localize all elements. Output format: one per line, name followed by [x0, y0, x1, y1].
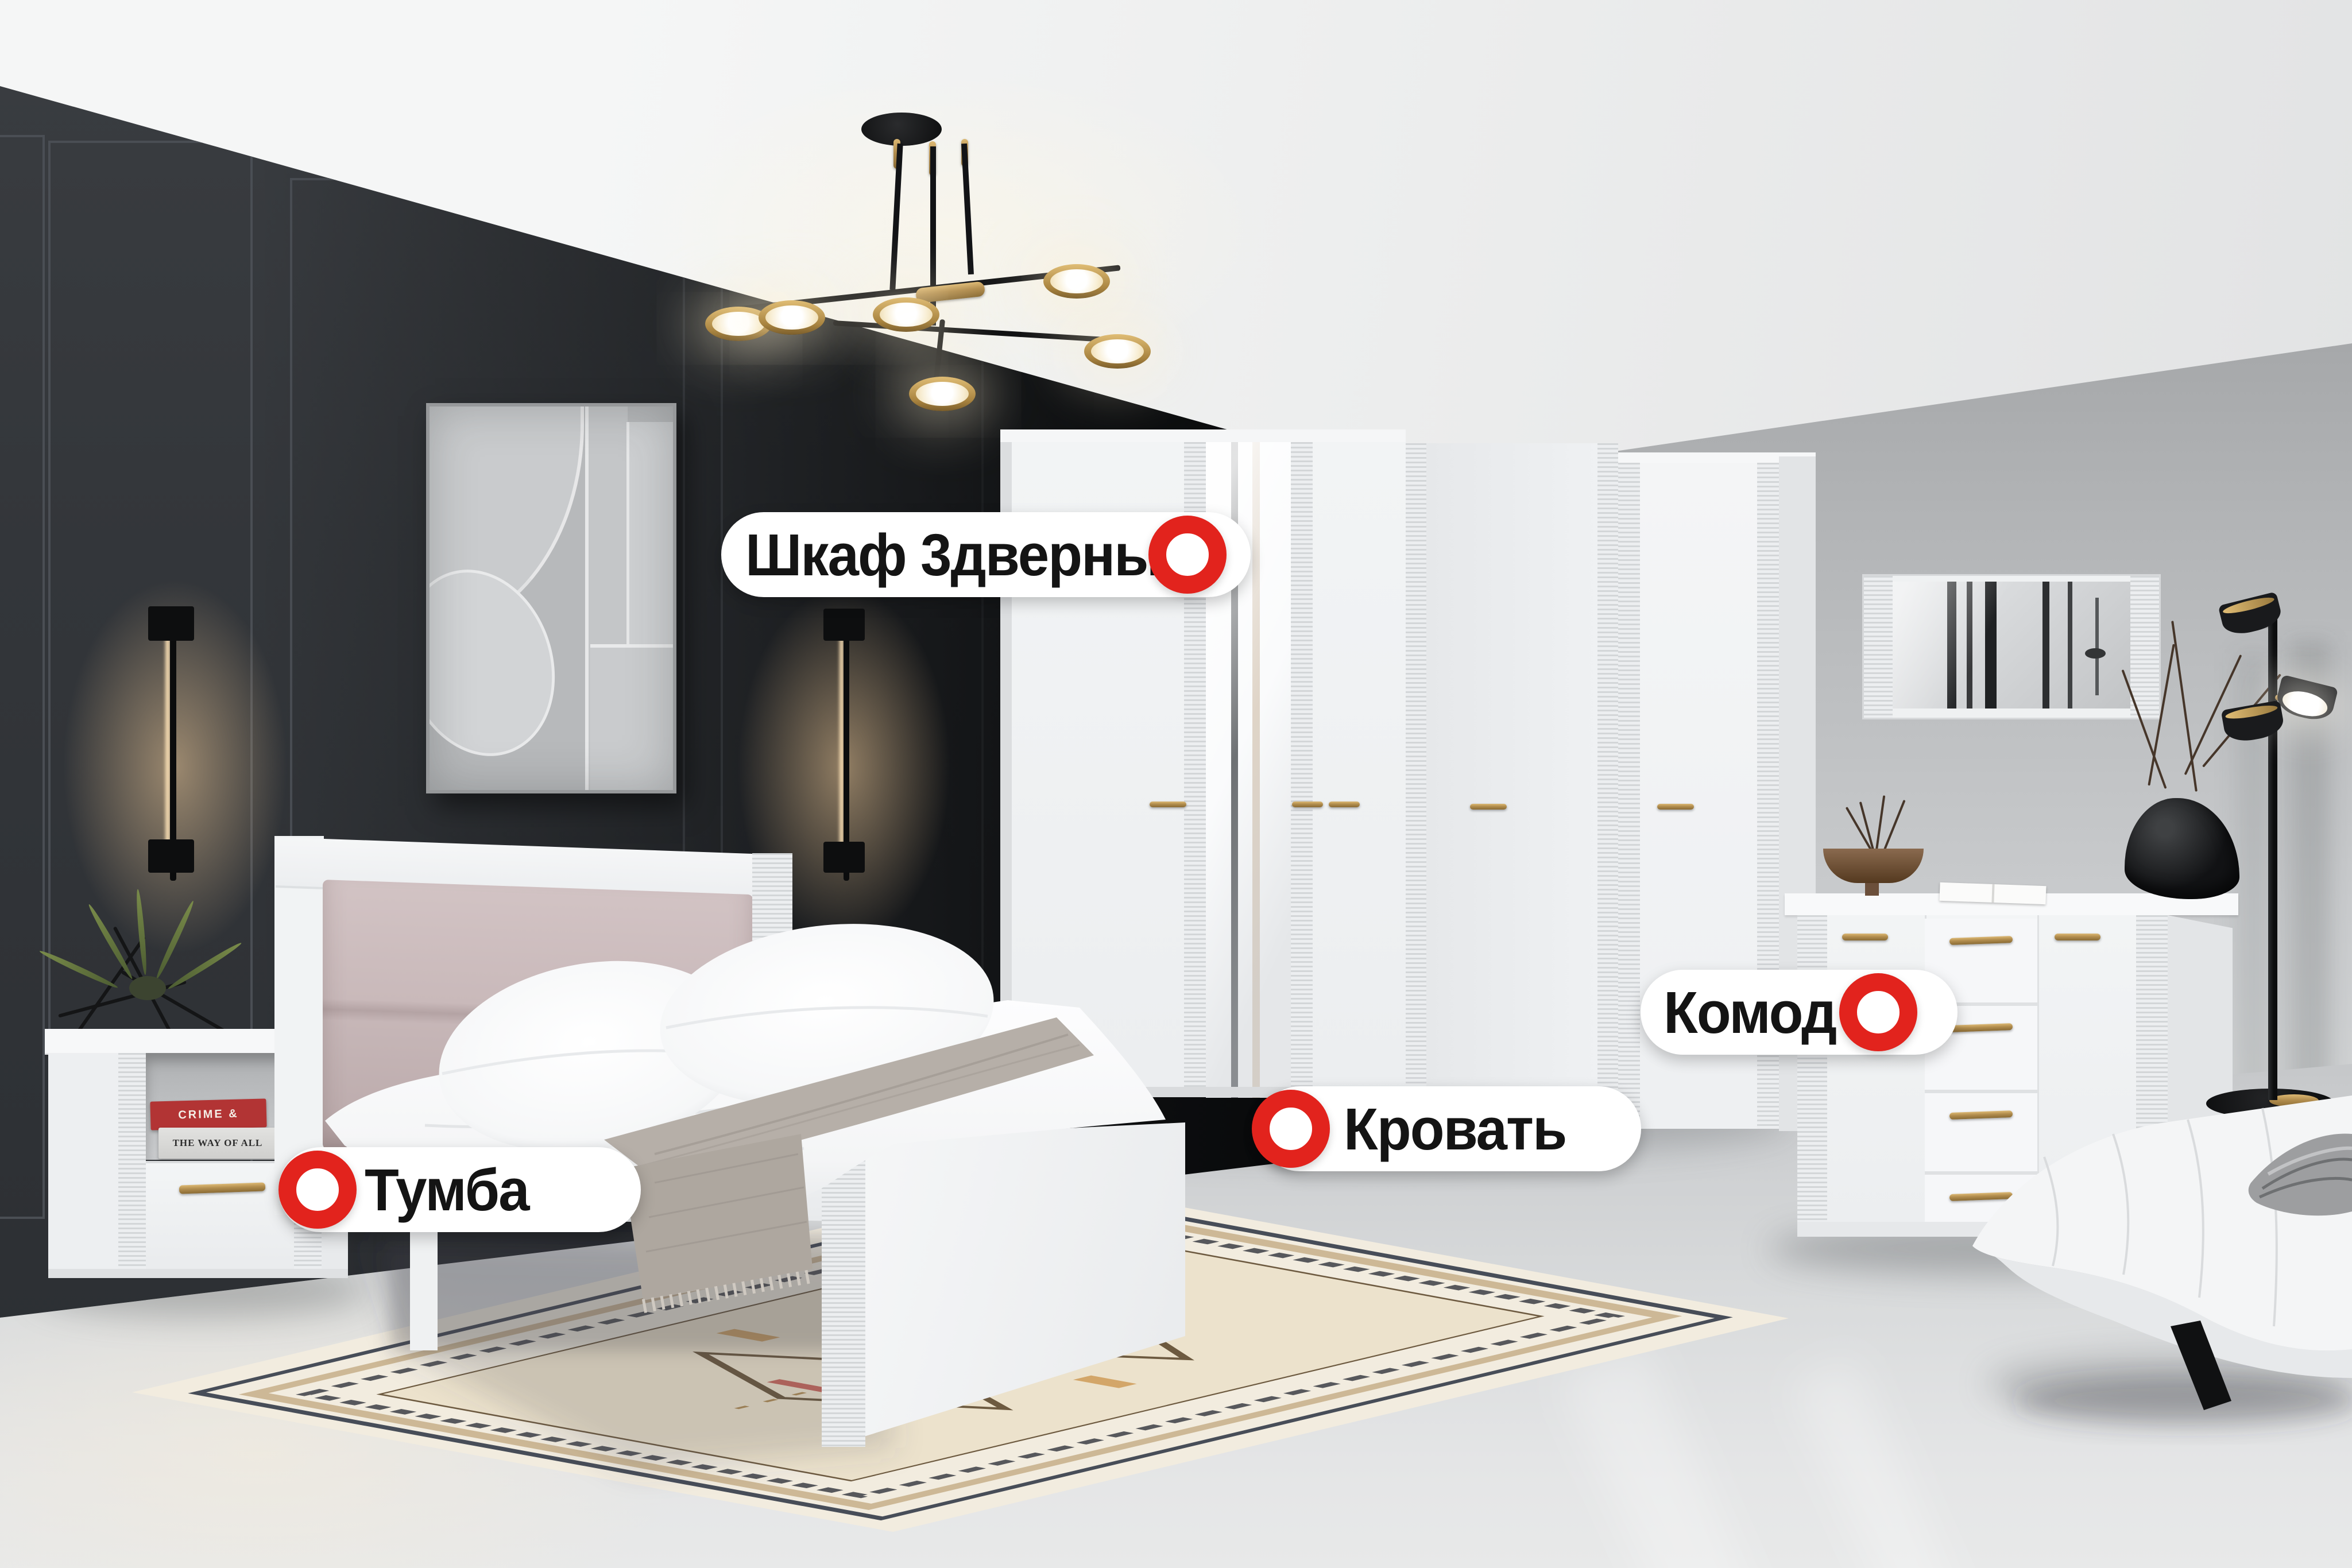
wardrobe-trim-strip — [1597, 443, 1618, 1120]
lamp-disc-light — [873, 297, 939, 332]
lamp-disc-light — [759, 300, 825, 335]
wardrobe-handle-icon — [1150, 802, 1186, 807]
lamp-canopy — [861, 113, 942, 146]
hotspot-marker-icon[interactable] — [1252, 1090, 1330, 1168]
hotspot-marker-icon[interactable] — [1148, 516, 1227, 594]
nightstand-label: Тумба — [365, 1160, 529, 1219]
wardrobe-door — [1313, 442, 1406, 1098]
floor-lamp-pole — [2268, 606, 2277, 1100]
dresser-door-left — [1827, 915, 1927, 1230]
hotspot-marker-icon[interactable] — [278, 1151, 357, 1229]
wall-mirror — [1862, 574, 2161, 719]
wardrobe-label: Шкаф 3дверный — [745, 525, 1194, 584]
wardrobe-handle-icon — [1657, 804, 1694, 810]
chaise-lounge — [1941, 1079, 2352, 1481]
wardrobe-handle-icon — [1292, 802, 1323, 807]
nightstand-left-face — [48, 1053, 118, 1278]
art-vignette — [430, 406, 673, 790]
lamp-disc-light — [1084, 334, 1151, 369]
dresser-label: Комод — [1664, 983, 1836, 1042]
mirror-glass — [1893, 582, 2130, 708]
hotspot-marker-icon[interactable] — [1839, 973, 1917, 1051]
wardrobe-trim-strip — [1291, 442, 1313, 1098]
abstract-wall-art — [426, 403, 676, 793]
wardrobe-handle-icon — [1329, 802, 1360, 807]
lamp-disc-light — [909, 377, 976, 411]
wardrobe-trim-strip — [1618, 463, 1640, 1129]
wardrobe-cornice — [1000, 429, 1406, 442]
dresser-handle-icon — [1842, 934, 1888, 940]
wardrobe-corner-face — [1406, 443, 1618, 1120]
open-book — [1939, 882, 2046, 904]
lamp-disc-light — [1043, 264, 1110, 299]
wardrobe-trim-strip — [1406, 443, 1426, 1120]
air-plant — [129, 976, 166, 1000]
bedroom-furniture-scene: CRIME & PUNISHMENT THE WAY OF ALL FLESH … — [0, 0, 2352, 1568]
book-spine: CRIME & PUNISHMENT — [150, 1098, 266, 1130]
bed-label: Кровать — [1344, 1099, 1566, 1159]
nightstand-trim-strip — [118, 1053, 146, 1278]
wardrobe-handle-icon — [1470, 804, 1507, 810]
dresser-handle-icon — [2055, 934, 2100, 940]
